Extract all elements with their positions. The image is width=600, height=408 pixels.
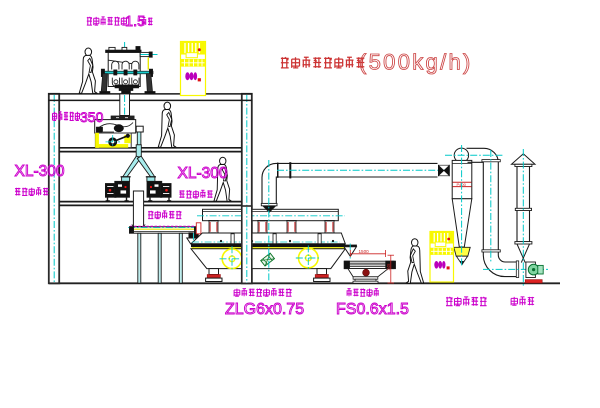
svg-text:ZLG6x0.75: ZLG6x0.75	[225, 301, 304, 318]
svg-text:1500: 1500	[359, 249, 370, 254]
svg-text:350: 350	[80, 109, 104, 125]
svg-text:XL-300: XL-300	[15, 163, 65, 180]
svg-text:FS0.6x1.5: FS0.6x1.5	[336, 301, 409, 318]
svg-text:345: 345	[386, 263, 391, 271]
svg-text:XL-300: XL-300	[178, 165, 228, 182]
svg-text:(500kg/h): (500kg/h)	[359, 49, 473, 74]
